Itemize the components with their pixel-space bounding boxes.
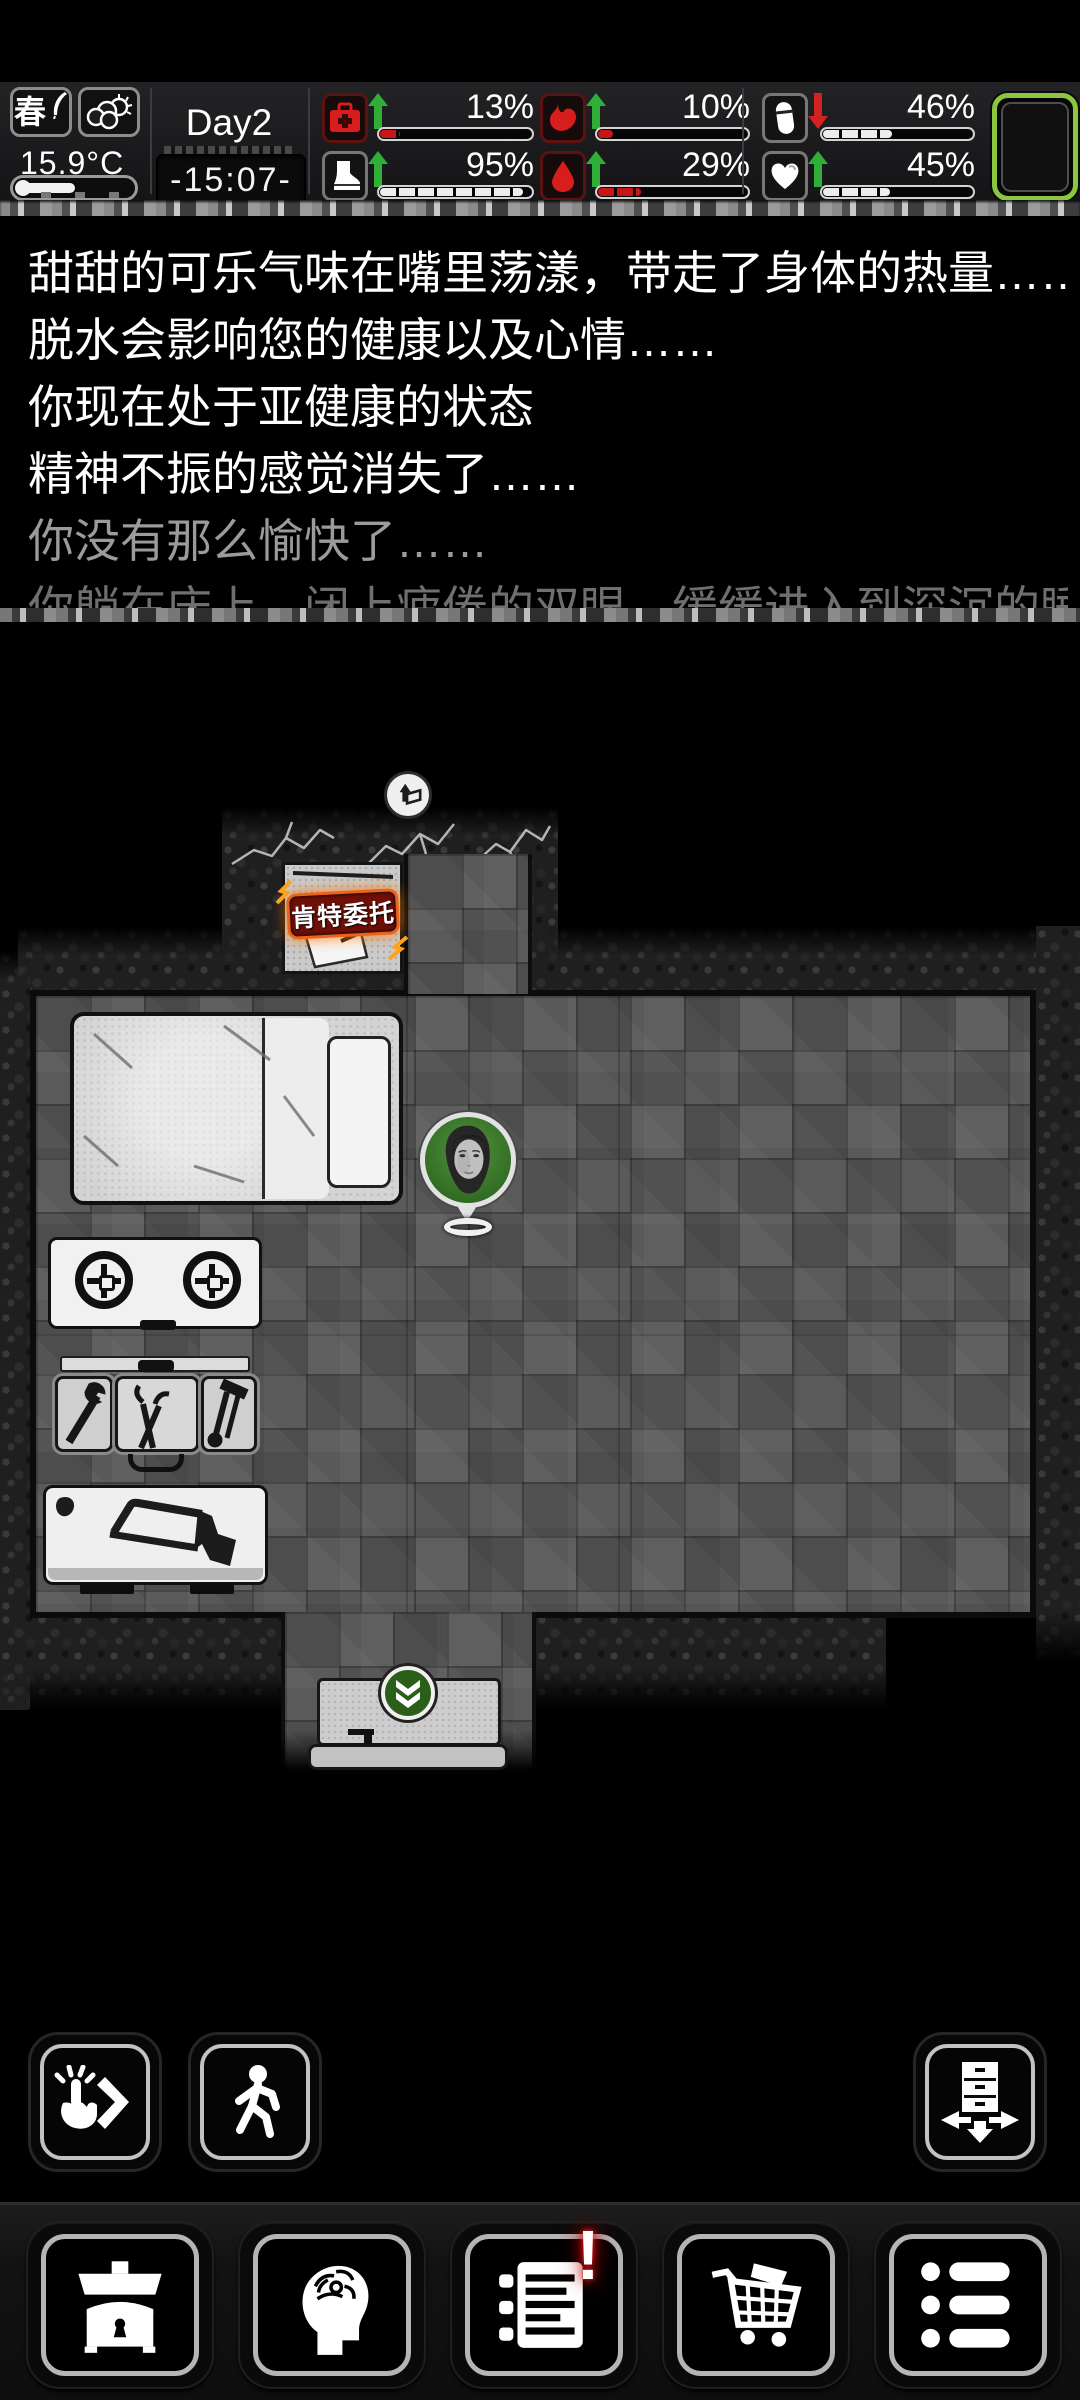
time-display: -15:07-	[158, 156, 304, 204]
mind-button[interactable]	[238, 2221, 426, 2389]
hacksaw-icon	[52, 1492, 262, 1576]
shop-button[interactable]	[662, 2221, 850, 2389]
trend-up-icon	[586, 93, 606, 129]
message-log: 甜甜的可乐气味在嘴里荡漾，带走了身体的热量…… 脱水会影响您的健康以及心情…… …	[28, 240, 1068, 608]
day-label: Day2	[150, 102, 308, 144]
drawer-deploy-icon	[937, 2059, 1023, 2145]
blood-drop-icon	[540, 151, 586, 201]
heart-icon	[762, 151, 808, 201]
log-divider	[0, 608, 1080, 622]
shopping-cart-icon	[704, 2257, 808, 2353]
rubble-room-right	[1036, 926, 1080, 1662]
medicine-bar	[820, 127, 975, 141]
stomach-icon	[540, 93, 586, 143]
season-badge: 春	[10, 87, 72, 137]
hydration-value: 29%	[630, 146, 750, 185]
spark-icon	[385, 935, 411, 961]
mood-value: 45%	[855, 146, 975, 185]
bottom-navbar: !	[0, 2202, 1080, 2400]
walking-person-icon	[223, 2064, 287, 2140]
chest-icon	[68, 2257, 172, 2353]
exit-down-marker[interactable]	[381, 1666, 435, 1720]
rubble-room-top	[18, 926, 1080, 992]
rubble-room-bottom-left	[0, 1612, 281, 1708]
portrait-icon	[425, 1117, 511, 1203]
log-line: 你躺在床上，闭上疲倦的双眼，缓缓进入到深沉的睡眠中	[28, 575, 1068, 608]
exit-door-icon	[393, 780, 423, 810]
partly-cloudy-icon	[85, 93, 133, 131]
deploy-furniture-button[interactable]	[913, 2032, 1047, 2172]
stamina-bar	[377, 185, 534, 199]
double-chevron-down-icon	[392, 1676, 424, 1710]
rubble-room-left	[0, 950, 30, 1710]
exit-up-marker[interactable]	[384, 771, 432, 819]
head-brain-icon	[282, 2253, 382, 2357]
log-line: 脱水会影响您的健康以及心情……	[28, 307, 1068, 374]
stove[interactable]	[48, 1237, 262, 1329]
first-aid-kit-icon	[322, 93, 368, 143]
tap-hand-icon	[53, 2065, 137, 2139]
mood-bar	[820, 185, 975, 199]
tap-interact-button[interactable]	[28, 2032, 162, 2172]
walk-button[interactable]	[188, 2032, 322, 2172]
quest-badge[interactable]: 肯特委托	[286, 888, 400, 940]
inventory-button[interactable]	[26, 2221, 214, 2389]
fullness-bar	[595, 127, 750, 141]
medicine-value: 46%	[855, 88, 975, 127]
trend-up-icon	[808, 151, 828, 187]
avatar-position-ring	[444, 1218, 492, 1236]
trend-down-icon	[808, 93, 828, 129]
trend-up-icon	[586, 151, 606, 187]
player-avatar[interactable]	[420, 1112, 516, 1208]
hud-divider	[0, 200, 1080, 216]
bed[interactable]	[70, 1012, 403, 1205]
stamina-value: 95%	[414, 146, 534, 185]
hud-bar: 春 15.9°C	[0, 82, 1080, 200]
capsule-icon	[762, 93, 808, 143]
menu-list-icon	[916, 2257, 1020, 2353]
saw-table[interactable]	[43, 1485, 268, 1585]
thermometer	[10, 175, 138, 201]
season-label: 春	[14, 96, 46, 128]
menu-button[interactable]	[874, 2221, 1062, 2389]
tools-icon	[55, 1376, 257, 1454]
game-screen: 春 15.9°C	[0, 0, 1080, 2400]
doorway-step	[308, 1744, 508, 1770]
log-line: 精神不振的感觉消失了……	[28, 441, 1068, 508]
log-line: 你没有那么愉快了……	[28, 508, 1068, 575]
hydration-bar	[595, 185, 750, 199]
corridor-top-floor	[404, 854, 532, 994]
trend-up-icon	[368, 151, 388, 187]
day-progress-ticks	[164, 146, 292, 155]
health-bar	[377, 127, 534, 141]
trend-up-icon	[368, 93, 388, 129]
health-value: 13%	[414, 88, 534, 127]
rubble-room-bottom-right	[536, 1612, 886, 1708]
battery-indicator	[992, 93, 1078, 201]
quest-tile[interactable]: 肯特委托	[282, 862, 403, 974]
journal-alert-badge: !	[560, 2213, 616, 2297]
log-line: 你现在处于亚健康的状态	[28, 374, 1068, 441]
spark-icon	[273, 879, 299, 905]
feather-icon	[48, 91, 68, 119]
boot-icon	[322, 151, 368, 201]
weather-badge	[78, 87, 140, 137]
log-line: 甜甜的可乐气味在嘴里荡漾，带走了身体的热量……	[28, 240, 1068, 307]
fullness-value: 10%	[630, 88, 750, 127]
